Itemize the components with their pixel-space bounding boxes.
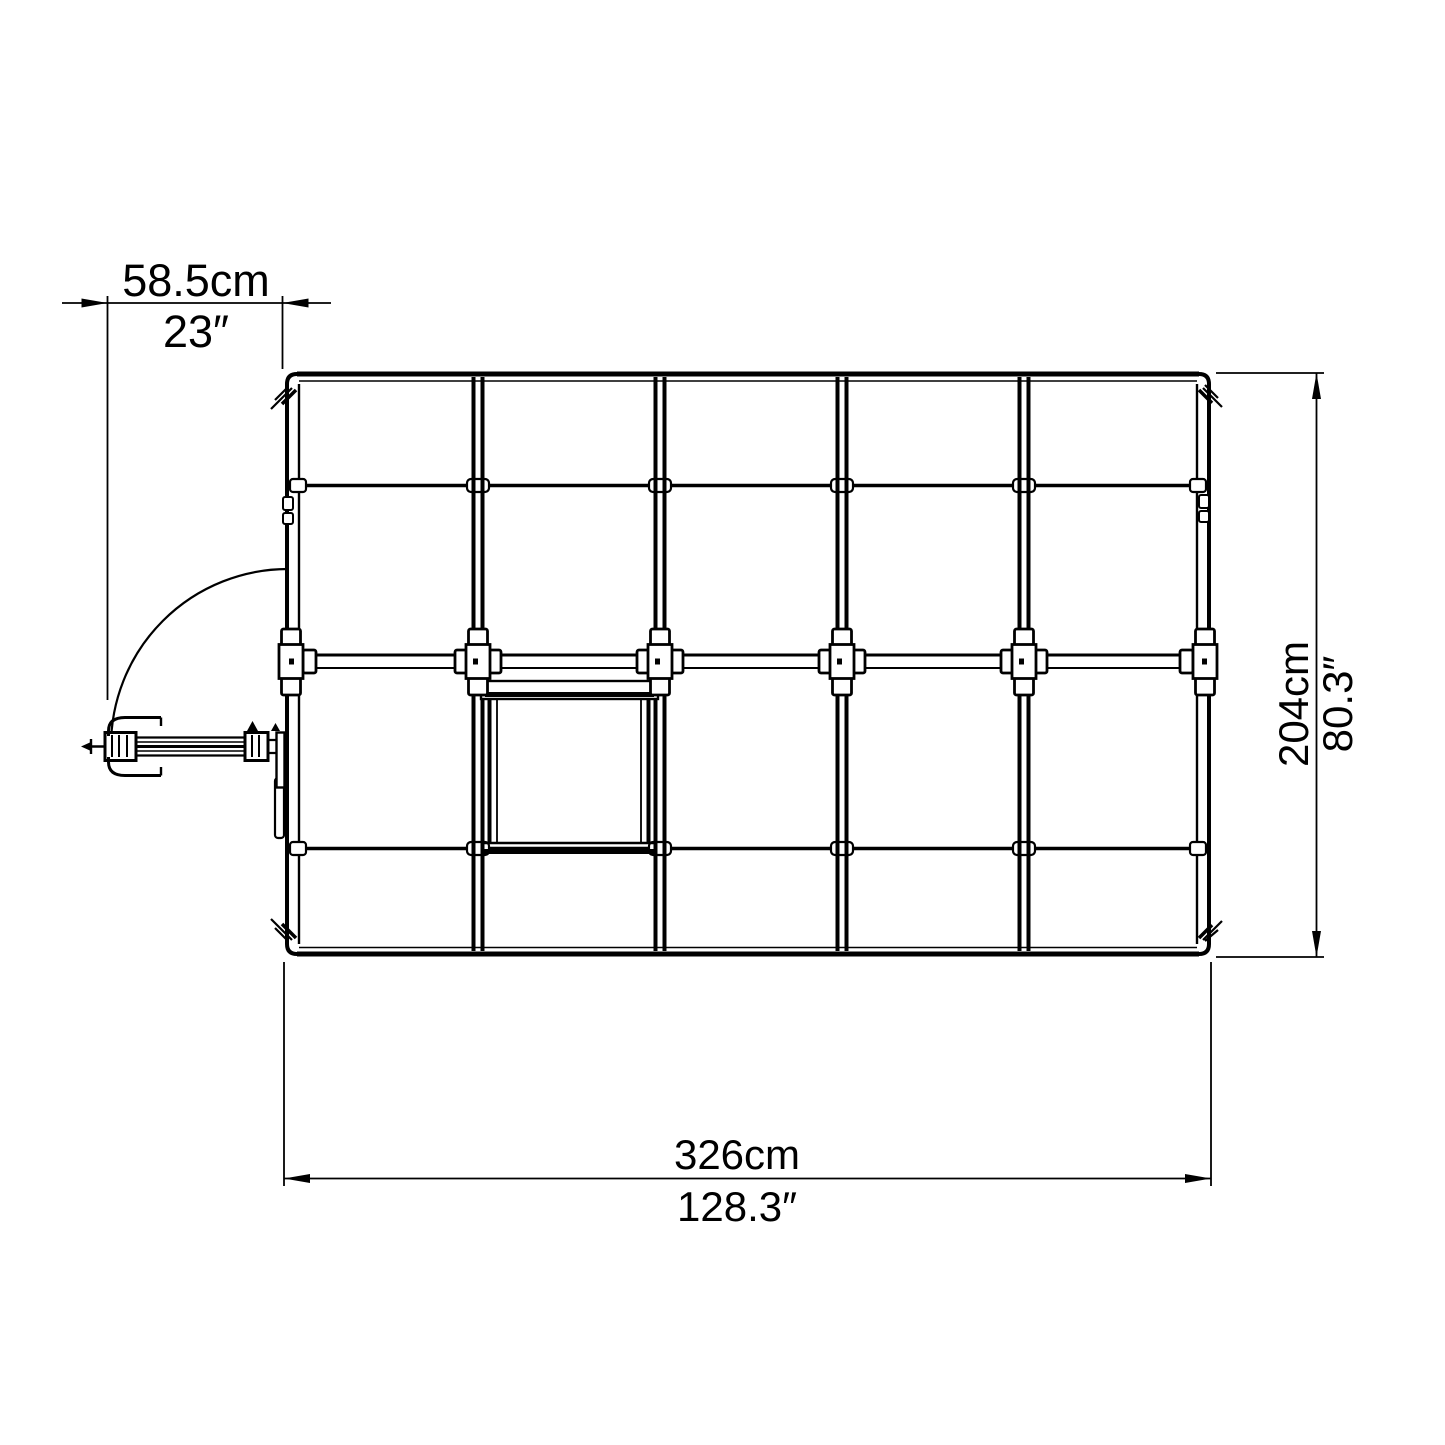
- wall-clip-right-upper: [1199, 495, 1209, 508]
- door-width-imperial-label: 23″: [163, 306, 229, 357]
- ridge-connector-right-wall: [1180, 629, 1217, 695]
- ridge-connector: [819, 629, 865, 695]
- ridge-connector: [1001, 629, 1047, 695]
- purlin-wall-joint: [290, 479, 306, 492]
- length-imperial-label: 128.3″: [677, 1183, 797, 1230]
- door-clip-wedge-a: [247, 721, 258, 731]
- door-hinge-block: [245, 733, 268, 761]
- door-handle-tip: [81, 742, 91, 751]
- dimension-length: 326cm 128.3″: [284, 962, 1211, 1230]
- wall-clip-left-upper: [283, 497, 293, 510]
- purlin-joint: [1013, 479, 1035, 492]
- wall-clip-left-lower: [283, 513, 293, 524]
- door-width-arrow-right: [283, 299, 309, 308]
- greenhouse-frame: [287, 374, 1209, 954]
- purlin-joint: [1013, 842, 1035, 855]
- dimension-depth: 204cm 80.3″: [1216, 373, 1361, 957]
- length-arrow-left: [284, 1174, 310, 1183]
- purlin-joint: [831, 479, 853, 492]
- roof-ribs: [474, 377, 1029, 951]
- roof-vent: [481, 681, 658, 852]
- purlin-joint: [649, 479, 671, 492]
- door-handle-stem: [91, 739, 105, 754]
- ridge-connectors: [279, 629, 1217, 695]
- door-swing-arc: [111, 569, 288, 746]
- depth-arrow-top: [1312, 373, 1321, 399]
- ridge-connector-left-wall: [279, 629, 316, 695]
- door-end-block-outer: [105, 733, 136, 761]
- ridge-beam: [299, 655, 1197, 668]
- frame-corner-details: [271, 385, 1222, 941]
- wall-clip-right-lower: [1199, 511, 1209, 522]
- length-metric-label: 326cm: [674, 1131, 800, 1178]
- greenhouse-top-view-diagram: 58.5cm 23″ 204cm 80.3″ 326cm 128.3″: [0, 0, 1445, 1445]
- purlin-wall-joint: [1190, 842, 1206, 855]
- depth-metric-label: 204cm: [1270, 641, 1317, 767]
- diagram-canvas: 58.5cm 23″ 204cm 80.3″ 326cm 128.3″: [0, 0, 1445, 1445]
- door-width-metric-label: 58.5cm: [122, 255, 270, 306]
- purlin-wall-joint: [290, 842, 306, 855]
- door-width-arrow-left: [82, 299, 108, 308]
- purlin-joint: [467, 479, 489, 492]
- purlin-wall-joint: [1190, 479, 1206, 492]
- depth-arrow-bottom: [1312, 931, 1321, 957]
- depth-imperial-label: 80.3″: [1314, 656, 1361, 753]
- door-hinge-plate: [277, 733, 285, 788]
- door-clip-wedge-b: [271, 723, 280, 731]
- purlin-joint: [831, 842, 853, 855]
- length-arrow-right: [1185, 1174, 1211, 1183]
- door-assembly: [81, 569, 288, 788]
